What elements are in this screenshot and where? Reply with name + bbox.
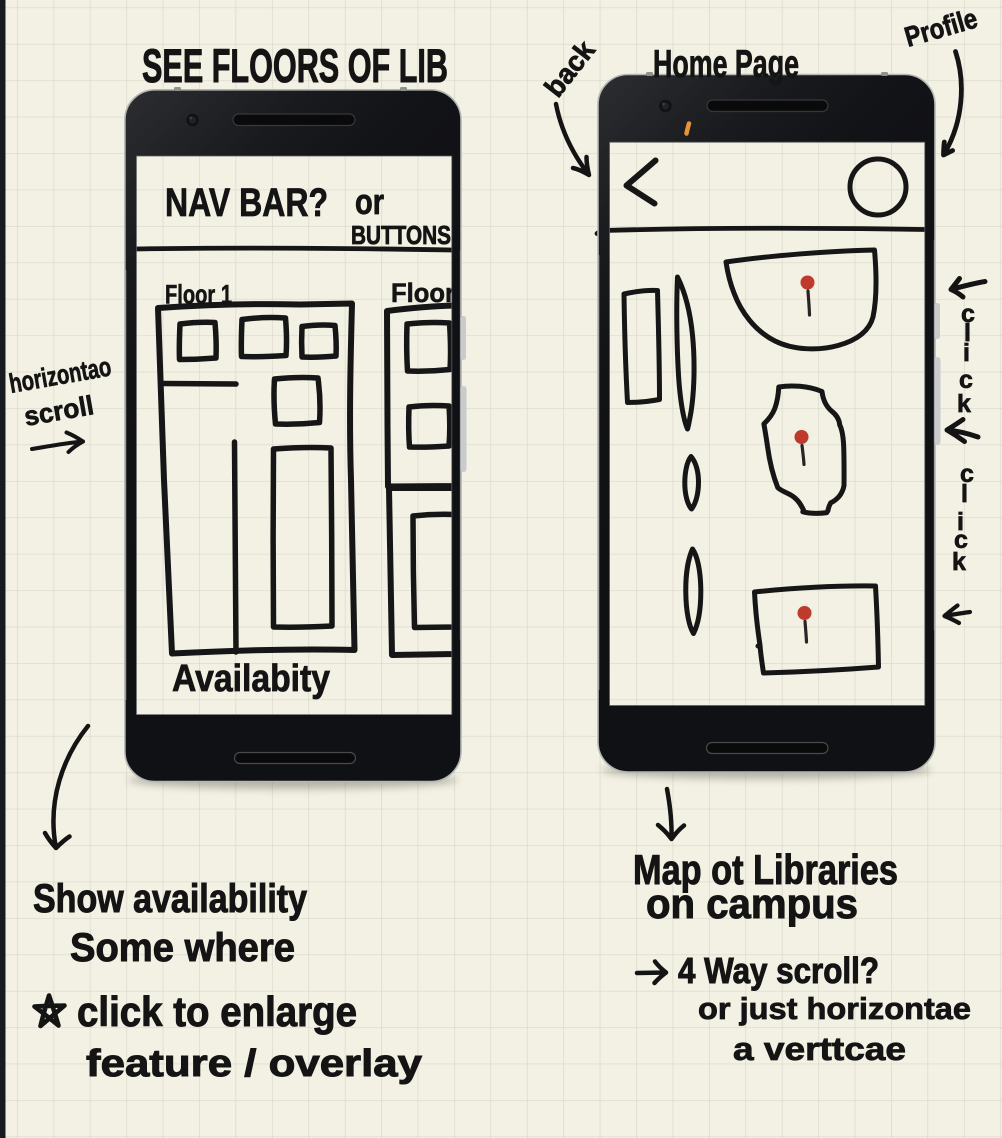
svg-text:Availabity: Availabity (172, 658, 330, 700)
svg-text:Floor 1: Floor 1 (165, 280, 232, 310)
svg-text:Some where: Some where (70, 926, 295, 970)
svg-text:k: k (952, 548, 966, 576)
svg-text:click to enlarge: click to enlarge (77, 988, 357, 1035)
svg-text:i: i (963, 339, 970, 367)
svg-text:or just horizontae: or just horizontae (698, 991, 971, 1026)
svg-text:NAV BAR?: NAV BAR? (165, 181, 328, 225)
svg-text:k: k (957, 390, 971, 418)
svg-text:or: or (355, 181, 384, 222)
svg-text:l: l (961, 480, 968, 508)
svg-text:Show availability: Show availability (33, 877, 308, 921)
svg-text:on campus: on campus (646, 880, 858, 927)
svg-text:4 Way scroll?: 4 Way scroll? (678, 950, 879, 991)
svg-text:BUTTONS: BUTTONS (351, 220, 451, 250)
svg-text:Floor: Floor (391, 278, 455, 308)
svg-text:a verttcae: a verttcae (733, 1031, 906, 1067)
svg-text:feature / overlay: feature / overlay (86, 1043, 422, 1085)
svg-text:Home Page: Home Page (653, 43, 799, 86)
svg-text:SEE FLOORS OF LIB: SEE FLOORS OF LIB (142, 39, 448, 92)
